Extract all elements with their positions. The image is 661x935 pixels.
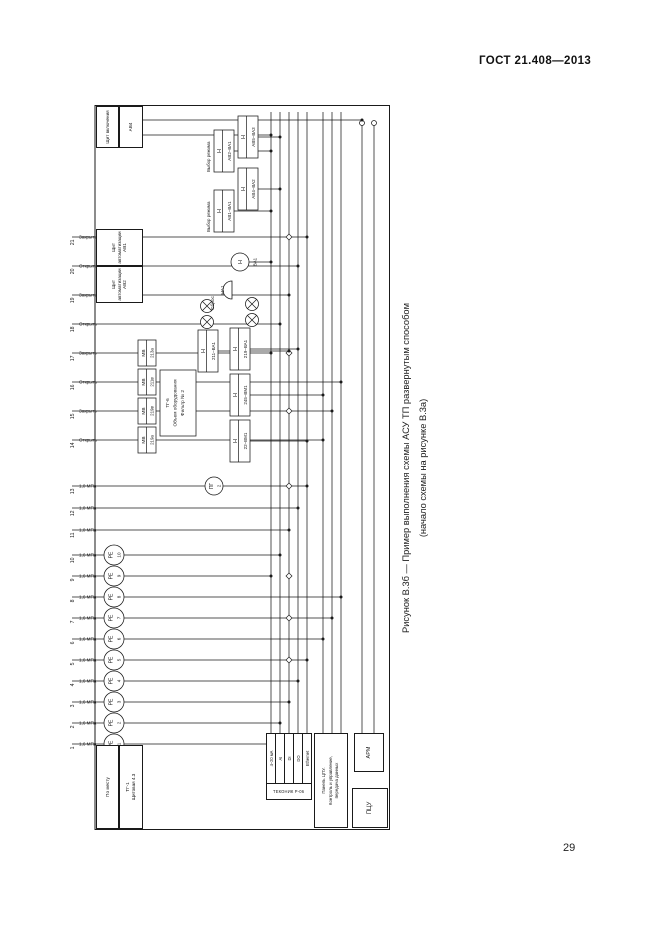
wire-number: 2 bbox=[70, 725, 76, 728]
h-box-letter: Н bbox=[241, 187, 247, 191]
junction-dot bbox=[340, 596, 343, 599]
zone-shit-avtomatizacii-av2: Щит автоматизации АВ2 bbox=[96, 266, 143, 303]
lamp-circle-letter: Н bbox=[238, 260, 244, 264]
mv-tag: 219а bbox=[150, 435, 155, 445]
pg-number: 2 bbox=[217, 484, 222, 487]
mv-letter: МВ bbox=[141, 436, 147, 443]
junction-dot bbox=[279, 188, 282, 191]
connector-diamond bbox=[286, 483, 292, 489]
wire-number: 12 bbox=[70, 510, 76, 516]
schematic-lines-layer: 11,6 МПаPE121,6 МПаPE231,6 МПаPE341,6 МП… bbox=[62, 105, 390, 830]
zone-label: АВ4 bbox=[128, 123, 134, 132]
room-pcu: ПЦУ bbox=[352, 788, 388, 828]
zone-label: Щит автоматизации АВ2 bbox=[111, 267, 129, 302]
controller-module: DO bbox=[293, 734, 302, 783]
wire-number: 15 bbox=[70, 413, 76, 419]
junction-dot bbox=[279, 136, 282, 139]
h-box-letter: Н bbox=[201, 349, 207, 353]
drawing-frame bbox=[95, 106, 390, 830]
zone-av4: АВ4 bbox=[119, 106, 143, 148]
sensor-number: 6 bbox=[117, 637, 122, 640]
h-box-letter: Н bbox=[241, 135, 247, 139]
wire-number: 6 bbox=[70, 641, 76, 644]
zone-label: Щит автоматизации АВ1 bbox=[111, 230, 129, 265]
room-label: АРМ bbox=[366, 747, 372, 759]
zone-shit-avtomatizacii-av1: Щит автоматизации АВ1 bbox=[96, 229, 143, 266]
connector-diamond bbox=[286, 657, 292, 663]
h-box-tag: АВ2–ВА1 bbox=[227, 141, 232, 161]
sensor-tag: PE bbox=[109, 719, 115, 726]
sensor-tag: PE bbox=[109, 656, 115, 663]
h-box-tag: АВ4–ВА2 bbox=[251, 179, 256, 199]
junction-dot bbox=[270, 210, 273, 213]
junction-dot bbox=[297, 265, 300, 268]
mv-letter: МВ bbox=[141, 378, 147, 385]
sensor-number: 2 bbox=[117, 721, 122, 724]
reset-label: Сброс bbox=[210, 295, 216, 310]
wire-number: 20 bbox=[70, 268, 76, 274]
panel-note: Панель ЦПУ. Контроль и управление, перед… bbox=[314, 733, 348, 828]
wire-number: 13 bbox=[70, 488, 76, 494]
wire-number: 18 bbox=[70, 326, 76, 332]
mv-boxes: МВ219аМВ219вМВ211вМВ213а bbox=[138, 340, 156, 453]
controller-module: AI bbox=[275, 734, 284, 783]
wire-number: 1 bbox=[70, 746, 76, 749]
junction-dot bbox=[270, 575, 273, 578]
note-line: Фильтр № 2 bbox=[180, 390, 185, 416]
sensor-tag: PE bbox=[109, 635, 115, 642]
h-box-letter: Н bbox=[217, 149, 223, 153]
schematic-rotated-canvas: 11,6 МПаPE121,6 МПаPE231,6 МПаPE341,6 МП… bbox=[62, 105, 390, 830]
junction-dot bbox=[270, 352, 273, 355]
mv-tag: 211в bbox=[150, 377, 155, 387]
junction-dot bbox=[288, 701, 291, 704]
sensor-tag: PE bbox=[109, 614, 115, 621]
sensor-tag: PE bbox=[109, 593, 115, 600]
wire-number: 9 bbox=[70, 578, 76, 581]
zone-label: Щит включения bbox=[105, 110, 111, 143]
wire-number: 19 bbox=[70, 297, 76, 303]
sensor-number: 10 bbox=[117, 552, 122, 558]
wire-number: 16 bbox=[70, 384, 76, 390]
junction-dot bbox=[306, 440, 309, 443]
junction-dot bbox=[306, 236, 309, 239]
sensor-tag: PE bbox=[109, 698, 115, 705]
wire-number: 4 bbox=[70, 683, 76, 686]
h-boxes: Н211–ВА1Н22–ВМ1Н245–ВМ1Н219–ВА1НАВ1–ВА1Н… bbox=[198, 116, 325, 462]
wire-number: 3 bbox=[70, 704, 76, 707]
connector-diamond bbox=[286, 615, 292, 621]
sensor-tag: PE bbox=[109, 677, 115, 684]
junction-dot bbox=[297, 348, 300, 351]
controller-module: DI bbox=[284, 734, 293, 783]
junction-dot bbox=[297, 680, 300, 683]
junction-dot bbox=[279, 554, 282, 557]
h-box-letter: Н bbox=[217, 209, 223, 213]
note-line: Объем оборудования bbox=[172, 379, 177, 426]
zone-tg1: ТГ-1 Щитовая 4.3 bbox=[119, 745, 143, 829]
junction-dot bbox=[331, 410, 334, 413]
junction-dot bbox=[361, 119, 364, 122]
junction-dot bbox=[270, 150, 273, 153]
figure-caption-line2: (начало схемы на рисунке В.3а) bbox=[415, 268, 432, 668]
page-number: 29 bbox=[563, 842, 575, 854]
sensor-number: 4 bbox=[117, 679, 122, 682]
zone-shit-vklyucheniya: Щит включения bbox=[96, 106, 119, 148]
zone-sublabel: Щитовая 4.3 bbox=[131, 774, 137, 801]
mv-letter: МВ bbox=[141, 407, 147, 414]
wire-number: 8 bbox=[70, 599, 76, 602]
h-box-tag: АВ1–ВА1 bbox=[227, 201, 232, 221]
connector-diamond bbox=[286, 234, 292, 240]
h-box-tag: 245–ВМ1 bbox=[243, 385, 248, 405]
sensor-tag: PE bbox=[109, 551, 115, 558]
h-box-tag: 211–ВА1 bbox=[211, 341, 216, 360]
wire-number: 14 bbox=[70, 442, 76, 448]
junction-dot bbox=[306, 485, 309, 488]
sensor-tag: PE bbox=[109, 572, 115, 579]
document-header: ГОСТ 21.408—2013 bbox=[479, 55, 591, 67]
figure-caption-rotated: Рисунок В.3б — Пример выполнения схемы А… bbox=[398, 268, 460, 668]
junction-dot bbox=[288, 294, 291, 297]
junction-dot bbox=[331, 617, 334, 620]
wire-number: 21 bbox=[70, 239, 76, 245]
h-box-letter: Н bbox=[233, 393, 239, 397]
junction-dot bbox=[288, 529, 291, 532]
panel-note-line: передача данных bbox=[334, 763, 340, 799]
controller-module: 4–20 мА bbox=[267, 734, 275, 783]
h-box-tag: 219–ВА1 bbox=[243, 339, 248, 358]
arm-workstation: АРМ bbox=[354, 733, 384, 772]
wire-number: 11 bbox=[70, 532, 76, 537]
mv-tag: 213а bbox=[150, 348, 155, 358]
junction-dot bbox=[270, 134, 273, 137]
schematic-drawing: 11,6 МПаPE121,6 МПаPE231,6 МПаPE341,6 МП… bbox=[62, 105, 390, 830]
sensor-number: 8 bbox=[117, 595, 122, 598]
junction-dot bbox=[279, 722, 282, 725]
junction-dot bbox=[297, 507, 300, 510]
room-label: ПЦУ bbox=[367, 802, 373, 815]
bell-tag: НА1 bbox=[220, 285, 226, 295]
h-box-letter: Н bbox=[233, 439, 239, 443]
sensor-number: 7 bbox=[117, 616, 122, 619]
controller-module: Ethernet bbox=[302, 734, 311, 783]
junction-dot bbox=[322, 394, 325, 397]
sensor-number: 5 bbox=[117, 658, 122, 661]
junction-dot bbox=[322, 439, 325, 442]
h-box-tag: 22–ВМ1 bbox=[243, 432, 248, 449]
zone-label: По месту bbox=[105, 777, 111, 797]
note-line: ТГ-6 bbox=[165, 398, 170, 408]
note-box: ТГ-6Объем оборудованияФильтр № 2 bbox=[160, 370, 196, 436]
controller-block: ТЕКОНИК Р-06 4–20 мАAIDIDOEthernet bbox=[266, 733, 312, 800]
controller-modules: 4–20 мАAIDIDOEthernet bbox=[267, 734, 311, 783]
junction-dot bbox=[279, 323, 282, 326]
pg-letter: ПГ bbox=[209, 483, 215, 490]
connector-diamond bbox=[286, 573, 292, 579]
wire-number: 5 bbox=[70, 662, 76, 665]
junction-dot bbox=[270, 261, 273, 264]
figure-caption-line1: Рисунок В.3б — Пример выполнения схемы А… bbox=[398, 268, 415, 668]
mode-label: Выбор режима bbox=[206, 141, 211, 172]
junction-dot bbox=[340, 381, 343, 384]
mode-label: Выбор режима bbox=[206, 201, 211, 232]
wire-number: 10 bbox=[70, 557, 76, 563]
mv-letter: МВ bbox=[141, 349, 147, 356]
wire-number: 7 bbox=[70, 620, 76, 623]
document-page: { "page": { "header": "ГОСТ 21.408—2013"… bbox=[0, 0, 661, 935]
wire-number: 17 bbox=[70, 355, 76, 361]
mv-tag: 219в bbox=[150, 406, 155, 416]
junction-dot bbox=[288, 350, 291, 353]
connector-diamond bbox=[286, 408, 292, 414]
junction-dot bbox=[322, 638, 325, 641]
sensor-number: 3 bbox=[117, 700, 122, 703]
junction-dot bbox=[306, 659, 309, 662]
h-box-letter: Н bbox=[233, 347, 239, 351]
controller-name: ТЕКОНИК Р-06 bbox=[267, 783, 311, 799]
sensor-number: 9 bbox=[117, 574, 122, 577]
h-box-tag: АВ5–ВА3 bbox=[251, 127, 256, 147]
zone-po-mestu: По месту bbox=[96, 745, 119, 829]
